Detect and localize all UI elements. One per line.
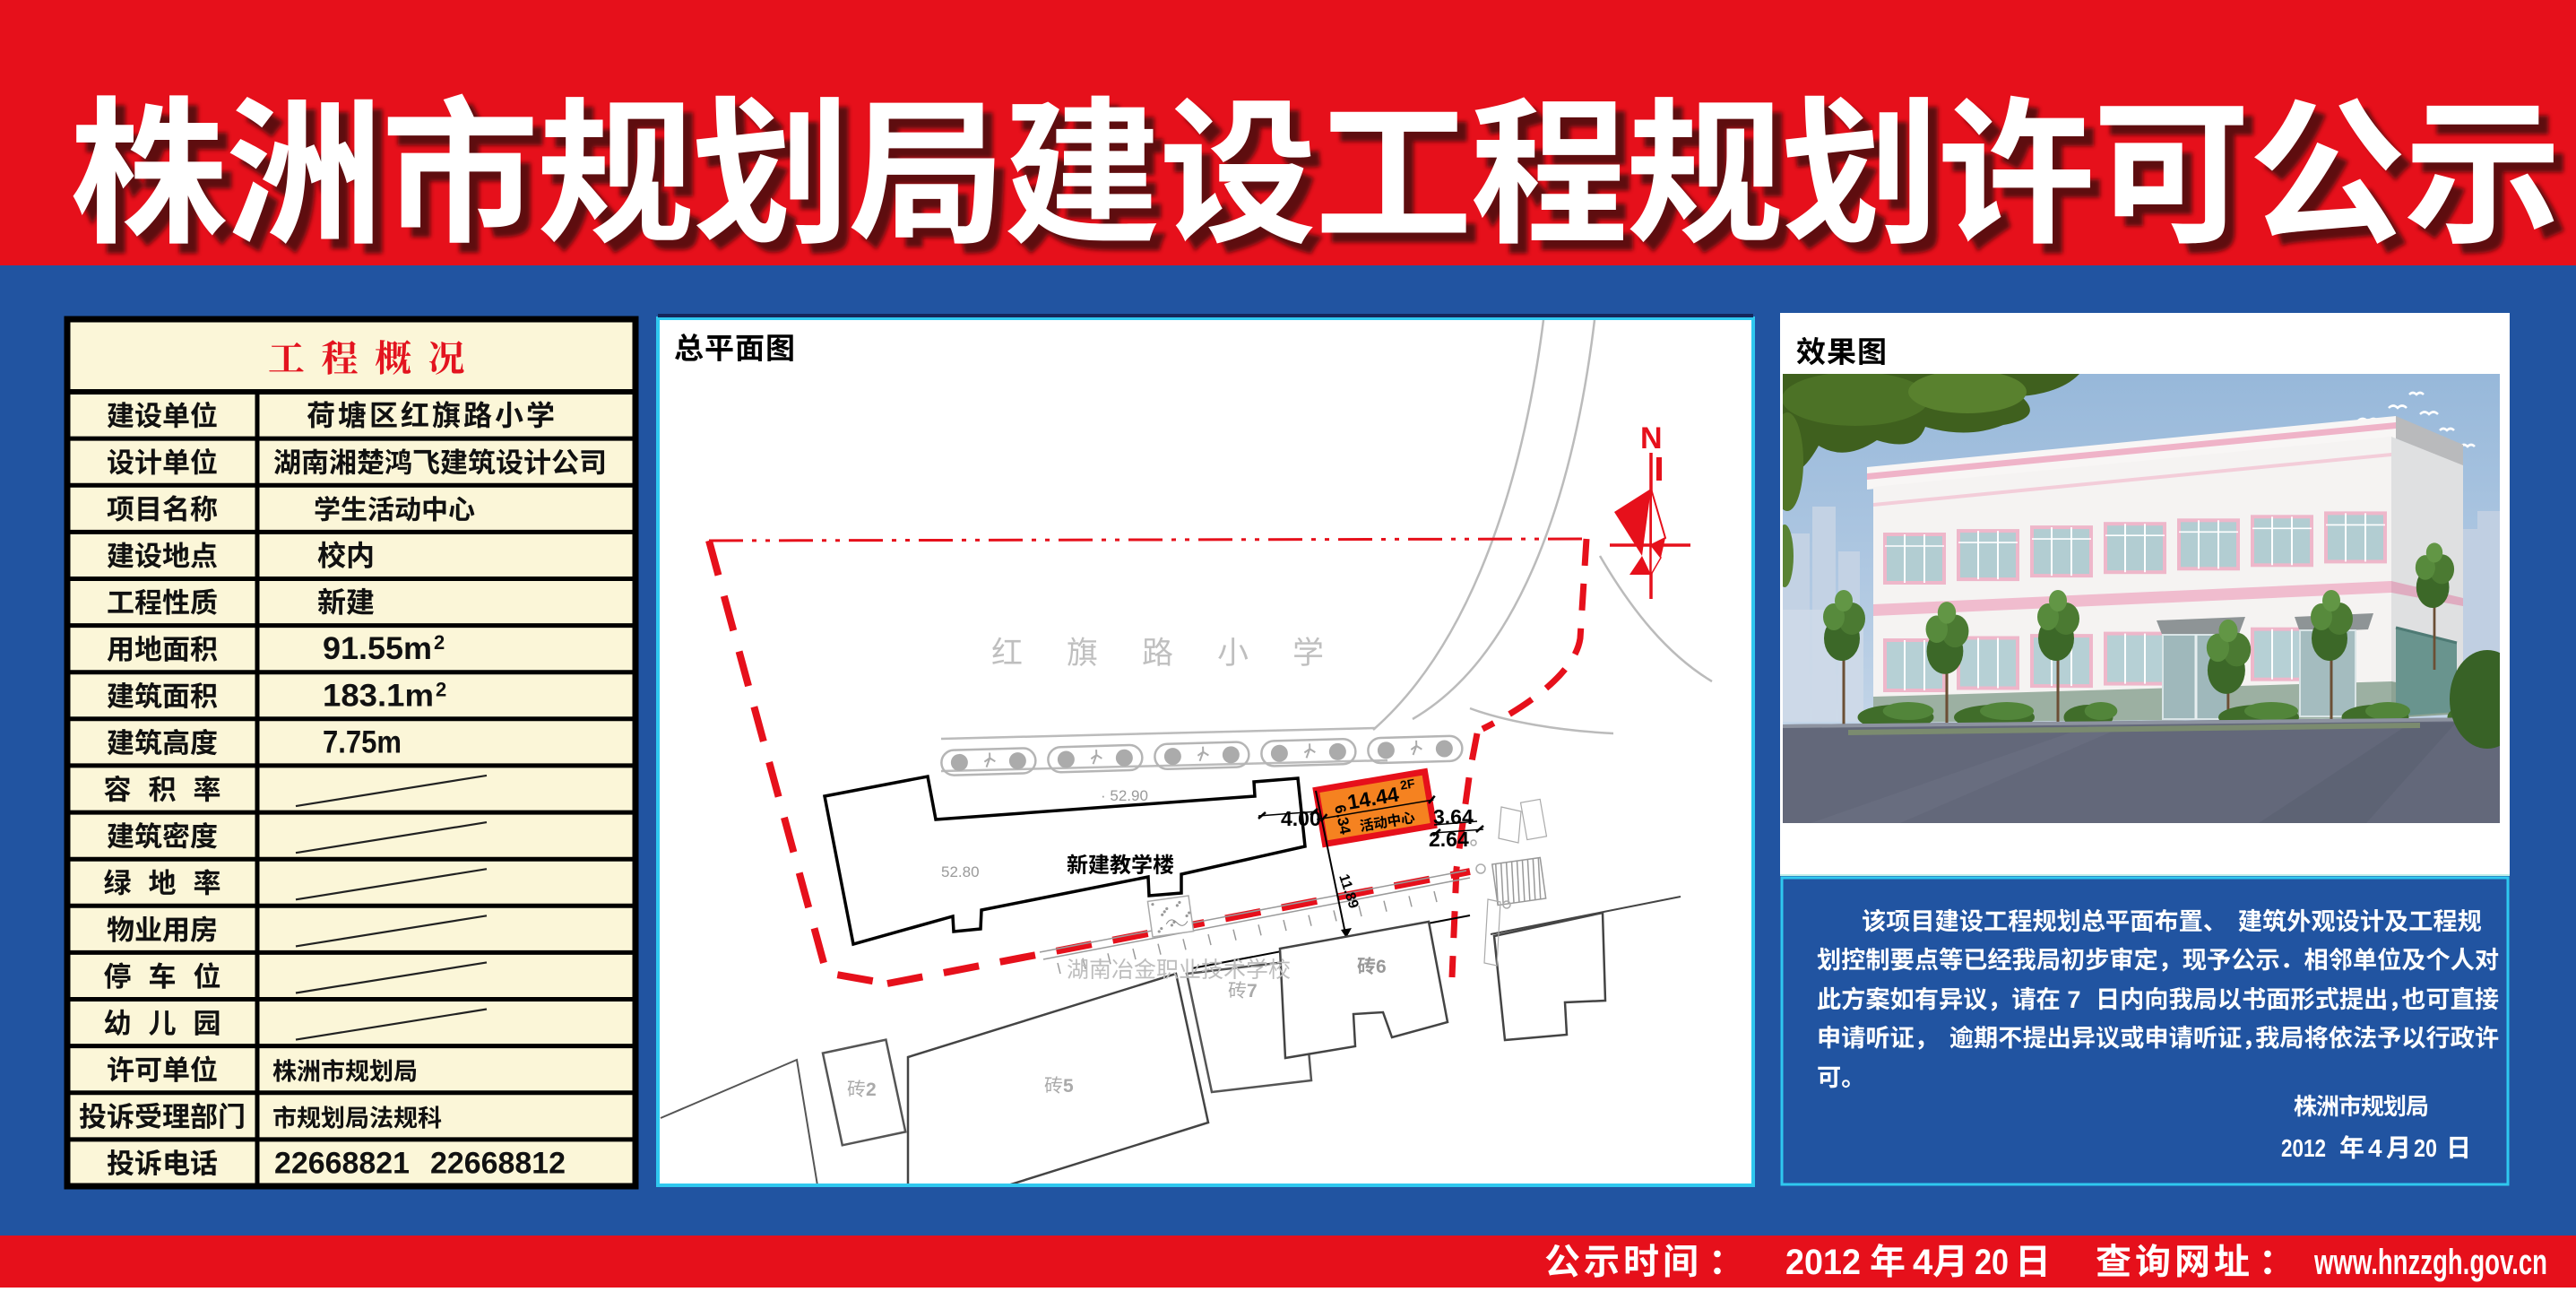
svg-text:5: 5 bbox=[1063, 1076, 1074, 1097]
svg-text:7: 7 bbox=[1247, 981, 1258, 1002]
svg-text:4: 4 bbox=[1913, 1243, 1933, 1282]
svg-text:2: 2 bbox=[866, 1080, 877, 1100]
svg-text:2.64: 2.64 bbox=[1429, 828, 1469, 851]
svg-text:www.hnzzgh.gov.cn: www.hnzzgh.gov.cn bbox=[2313, 1243, 2547, 1282]
svg-text:7: 7 bbox=[2061, 985, 2088, 1013]
svg-text:2012: 2012 bbox=[2281, 1134, 2326, 1162]
svg-text:91.55m: 91.55m bbox=[323, 631, 432, 666]
svg-text:3.64: 3.64 bbox=[1433, 805, 1474, 828]
svg-text:2F: 2F bbox=[1399, 776, 1416, 793]
svg-text:N: N bbox=[1640, 421, 1663, 455]
svg-text:22668812: 22668812 bbox=[430, 1146, 566, 1180]
svg-text:2: 2 bbox=[434, 631, 445, 654]
svg-text:22668821: 22668821 bbox=[274, 1146, 410, 1180]
svg-text:52.80: 52.80 bbox=[941, 863, 980, 880]
svg-text:4: 4 bbox=[2368, 1134, 2382, 1162]
svg-text:20: 20 bbox=[1975, 1243, 2009, 1282]
svg-text:20: 20 bbox=[2414, 1134, 2437, 1162]
svg-text:7.75m: 7.75m bbox=[323, 724, 402, 759]
svg-text:4.00: 4.00 bbox=[1281, 807, 1321, 830]
svg-text:· 52.90: · 52.90 bbox=[1101, 787, 1148, 804]
svg-text:183.1m: 183.1m bbox=[323, 678, 434, 713]
svg-text:2: 2 bbox=[436, 678, 446, 700]
svg-text:2012: 2012 bbox=[1785, 1243, 1861, 1282]
svg-text:6: 6 bbox=[1376, 957, 1387, 977]
